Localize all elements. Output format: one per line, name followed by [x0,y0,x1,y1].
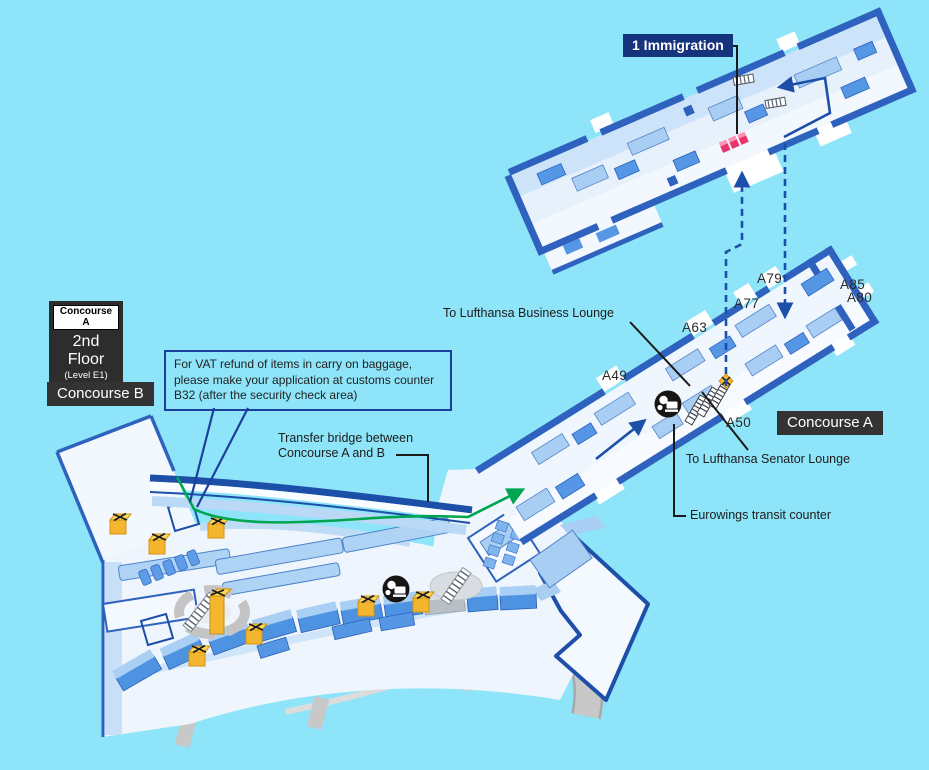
bridge-label-pointer [396,455,428,502]
floor-box-concourse: Concourse A [53,305,119,330]
transfer-bridge-label-line1: Transfer bridge between [278,431,413,446]
immigration-label: 1 Immigration [623,34,733,57]
business-lounge-label: To Lufthansa Business Lounge [443,306,614,321]
gate-label-a63: A63 [682,320,707,335]
concourse-a-building [469,229,893,550]
rest-area-icon [655,391,682,418]
eurowings-label: Eurowings transit counter [690,508,831,523]
gate-label-a50: A50 [726,415,751,430]
gate-label-a80: A80 [847,290,872,305]
floor-box-level: (Level E1) [53,370,119,381]
floor-level-box: Concourse A 2nd Floor (Level E1) [49,301,123,386]
rest-area-icon [383,576,410,603]
gate-label-a79: A79 [757,271,782,286]
transfer-bridge-label: Transfer bridge between Concourse A and … [278,431,413,462]
gate-label-a49: A49 [602,368,627,383]
terminal-map: 1 Immigration Concourse A 2nd Floor (Lev… [0,0,929,770]
gate-label-a77: A77 [734,296,759,311]
concourse-a-badge: Concourse A [777,411,883,435]
floor-box-floor: 2nd Floor [53,333,119,369]
pier-left-band [105,562,122,735]
concourse-b-badge: Concourse B [47,382,154,406]
senator-lounge-label: To Lufthansa Senator Lounge [686,452,850,467]
vat-refund-note: For VAT refund of items in carry on bagg… [164,350,452,411]
transfer-bridge-label-line2: Concourse A and B [278,446,413,461]
